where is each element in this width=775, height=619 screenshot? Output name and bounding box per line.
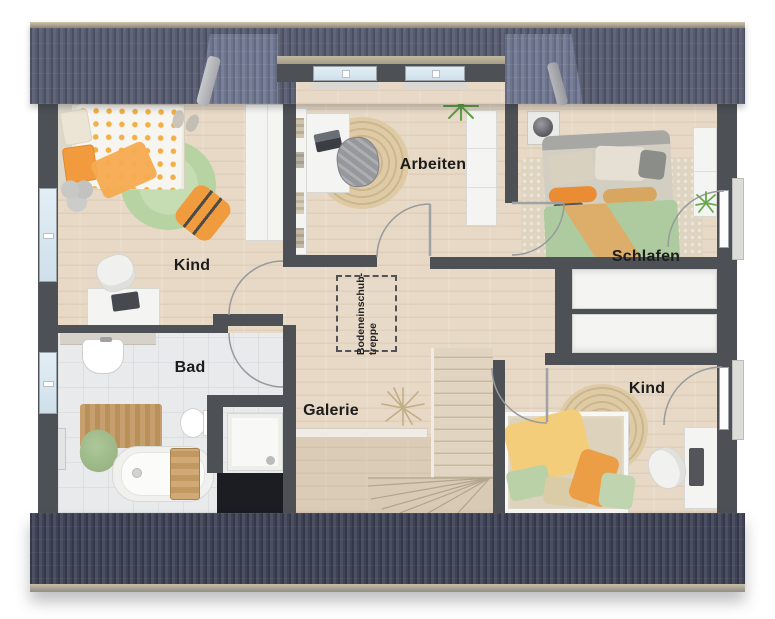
door-arc-arbeiten xyxy=(377,204,430,257)
room-label-arbeiten: Arbeiten xyxy=(400,156,467,174)
window-swing-arc-schlafen xyxy=(668,191,724,247)
room-label-kind-right: Kind xyxy=(629,380,665,398)
roof-gutter xyxy=(30,584,745,592)
door-arc-schlafen xyxy=(512,203,564,255)
room-label-galerie: Galerie xyxy=(303,402,359,420)
dormer-wall xyxy=(277,64,505,82)
window-sill xyxy=(403,82,467,90)
roof-window xyxy=(313,66,377,81)
attic-hatch-label: Bodeneinschub- treppe xyxy=(355,272,379,354)
window-sill xyxy=(311,82,379,90)
dormer-slope-right xyxy=(505,34,583,104)
roof-window xyxy=(405,66,465,81)
window-swing-arc-kind-right xyxy=(664,367,722,425)
window-handle xyxy=(432,70,440,78)
staircase-winder-lines xyxy=(368,478,493,513)
dormer-arbeiten xyxy=(277,56,505,104)
room-label-bad: Bad xyxy=(175,359,206,377)
attic-hatch-line2: treppe xyxy=(367,272,379,354)
room-label-kind-left: Kind xyxy=(174,257,210,275)
plant-icon xyxy=(696,192,716,212)
roof-bottom xyxy=(30,513,745,592)
door-arc-bad xyxy=(229,333,283,387)
door-arc-kind-right xyxy=(492,368,547,423)
window-handle xyxy=(342,70,350,78)
attic-hatch-box: Bodeneinschub- treppe xyxy=(336,275,397,352)
dormer-ridge xyxy=(277,56,505,64)
dried-plant-icon xyxy=(382,388,424,425)
floor-plan-canvas: Kind Arbeiten Schlafen Bad Galerie Kind … xyxy=(0,0,775,619)
door-arc-kind-left xyxy=(229,261,283,315)
attic-hatch-line1: Bodeneinschub- xyxy=(355,272,367,354)
room-label-schlafen: Schlafen xyxy=(612,248,680,266)
roof-ridge xyxy=(30,22,745,28)
